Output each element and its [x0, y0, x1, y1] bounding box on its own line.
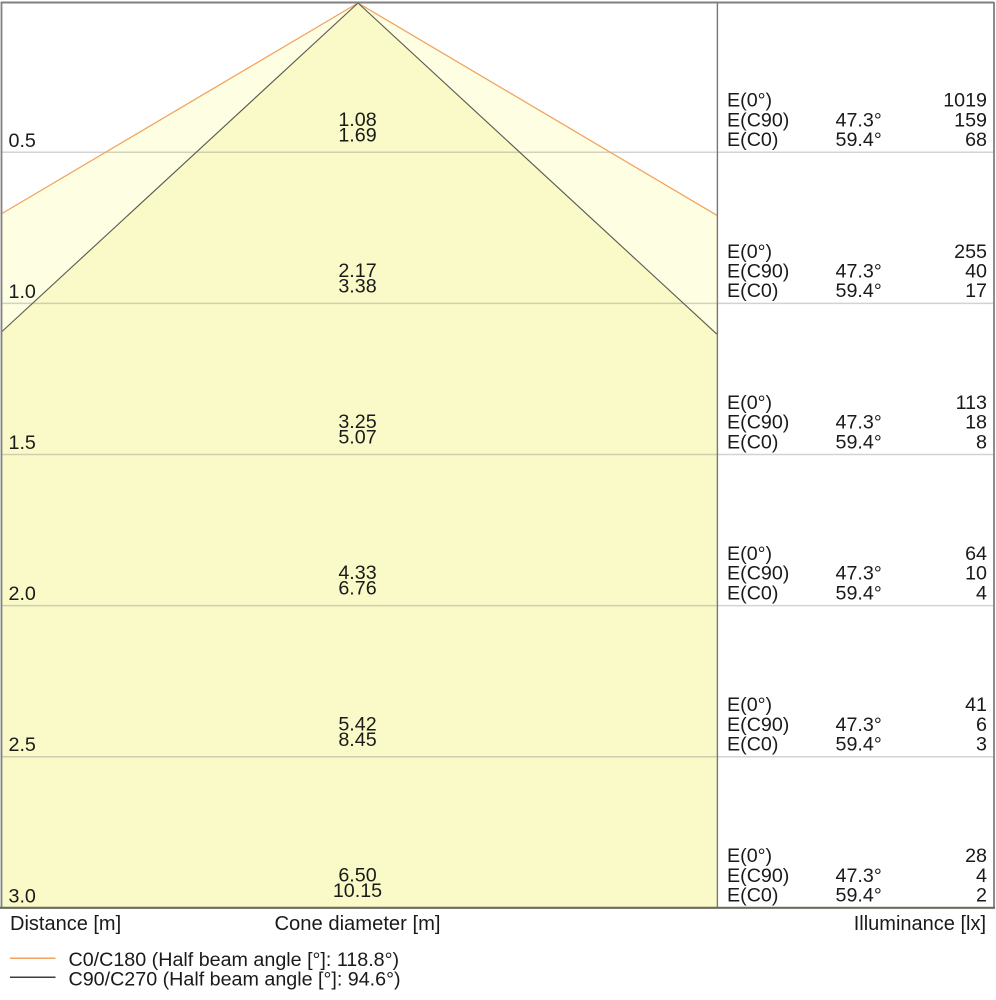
- svg-text:4: 4: [976, 582, 987, 604]
- svg-text:C90/C270 (Half beam angle [°]:: C90/C270 (Half beam angle [°]: 94.6°): [69, 968, 401, 990]
- svg-text:10: 10: [965, 563, 987, 585]
- svg-text:8: 8: [976, 431, 987, 453]
- svg-text:59.4°: 59.4°: [836, 734, 882, 756]
- svg-text:47.3°: 47.3°: [836, 412, 882, 434]
- svg-text:6: 6: [976, 714, 987, 736]
- svg-text:E(C0): E(C0): [727, 734, 778, 756]
- svg-text:E(C90): E(C90): [727, 714, 789, 736]
- svg-text:6.76: 6.76: [338, 578, 376, 600]
- svg-text:Illuminance [lx]: Illuminance [lx]: [854, 913, 986, 935]
- svg-text:5.07: 5.07: [338, 427, 376, 449]
- svg-text:17: 17: [965, 280, 987, 302]
- svg-text:41: 41: [965, 694, 987, 716]
- svg-text:47.3°: 47.3°: [836, 109, 882, 131]
- svg-text:68: 68: [965, 129, 987, 151]
- svg-text:E(C90): E(C90): [727, 412, 789, 434]
- svg-text:1019: 1019: [943, 90, 987, 112]
- svg-text:E(C0): E(C0): [727, 129, 778, 151]
- svg-text:47.3°: 47.3°: [836, 865, 882, 887]
- svg-text:47.3°: 47.3°: [836, 261, 882, 283]
- svg-text:28: 28: [965, 845, 987, 867]
- svg-text:8.45: 8.45: [338, 729, 376, 751]
- svg-text:E(C0): E(C0): [727, 885, 778, 907]
- svg-text:59.4°: 59.4°: [836, 431, 882, 453]
- svg-text:3.0: 3.0: [9, 885, 36, 907]
- svg-text:18: 18: [965, 412, 987, 434]
- svg-text:E(C90): E(C90): [727, 563, 789, 585]
- svg-text:64: 64: [965, 543, 987, 565]
- svg-text:159: 159: [954, 109, 987, 131]
- svg-text:E(C90): E(C90): [727, 261, 789, 283]
- svg-text:1.5: 1.5: [9, 432, 36, 454]
- svg-text:2.5: 2.5: [9, 734, 36, 756]
- svg-text:E(0°): E(0°): [727, 241, 772, 263]
- svg-text:59.4°: 59.4°: [836, 885, 882, 907]
- svg-text:1.69: 1.69: [338, 124, 376, 146]
- svg-text:3: 3: [976, 734, 987, 756]
- svg-text:E(C90): E(C90): [727, 109, 789, 131]
- svg-text:1.0: 1.0: [9, 281, 36, 303]
- svg-text:47.3°: 47.3°: [836, 714, 882, 736]
- svg-text:E(0°): E(0°): [727, 392, 772, 414]
- svg-text:59.4°: 59.4°: [836, 129, 882, 151]
- svg-text:0.5: 0.5: [9, 130, 36, 152]
- svg-text:10.15: 10.15: [333, 880, 382, 902]
- svg-text:47.3°: 47.3°: [836, 563, 882, 585]
- svg-text:40: 40: [965, 261, 987, 283]
- svg-text:E(C90): E(C90): [727, 865, 789, 887]
- svg-text:255: 255: [954, 241, 987, 263]
- svg-text:4: 4: [976, 865, 987, 887]
- svg-text:E(C0): E(C0): [727, 431, 778, 453]
- svg-text:3.38: 3.38: [338, 276, 376, 298]
- svg-text:E(0°): E(0°): [727, 90, 772, 112]
- svg-text:Cone diameter [m]: Cone diameter [m]: [274, 913, 440, 935]
- svg-text:E(C0): E(C0): [727, 280, 778, 302]
- svg-text:Distance [m]: Distance [m]: [10, 913, 121, 935]
- svg-text:2: 2: [976, 885, 987, 907]
- svg-text:E(C0): E(C0): [727, 582, 778, 604]
- svg-text:59.4°: 59.4°: [836, 582, 882, 604]
- svg-text:E(0°): E(0°): [727, 845, 772, 867]
- svg-text:E(0°): E(0°): [727, 543, 772, 565]
- svg-text:59.4°: 59.4°: [836, 280, 882, 302]
- svg-text:2.0: 2.0: [9, 583, 36, 605]
- svg-text:E(0°): E(0°): [727, 694, 772, 716]
- svg-text:113: 113: [956, 392, 987, 414]
